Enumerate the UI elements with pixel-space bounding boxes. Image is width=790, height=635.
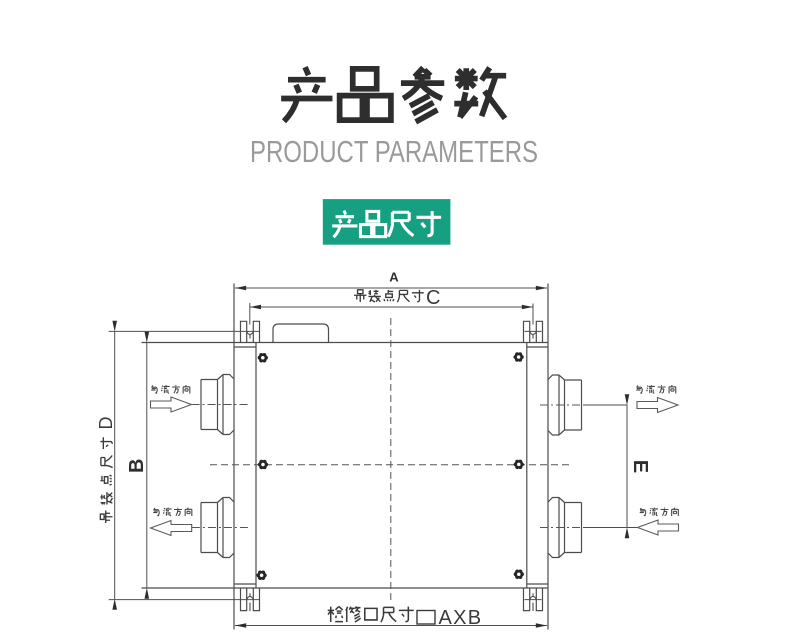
svg-text:A: A: [389, 270, 399, 285]
svg-text:D: D: [96, 417, 116, 430]
svg-text:C: C: [426, 287, 440, 309]
svg-text:AXB: AXB: [439, 607, 483, 629]
svg-text:PRODUCT PARAMETERS: PRODUCT PARAMETERS: [250, 134, 538, 169]
svg-text:B: B: [126, 459, 148, 473]
svg-text:E: E: [629, 460, 651, 473]
